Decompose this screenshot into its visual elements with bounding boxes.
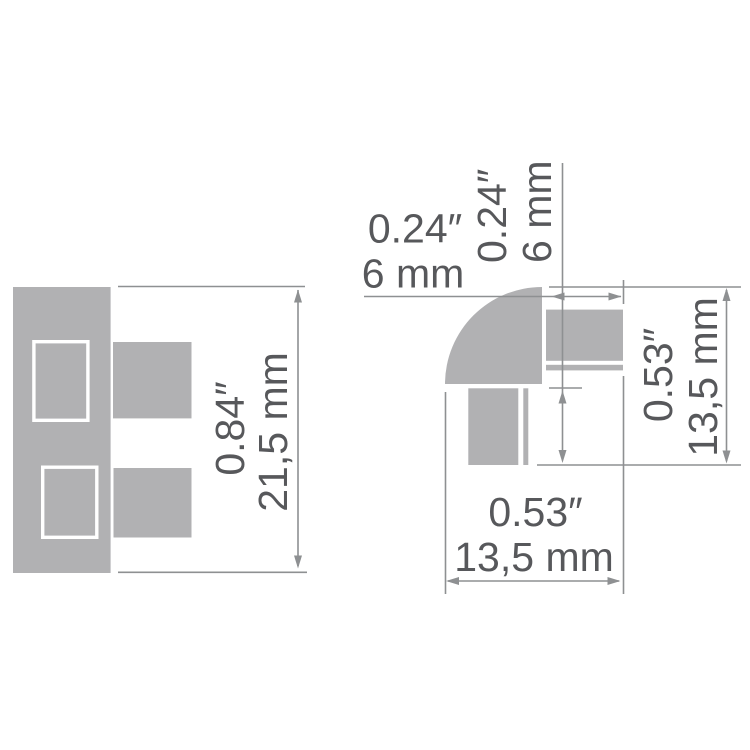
svg-text:0.24″: 0.24″ <box>368 206 462 252</box>
svg-text:6 mm: 6 mm <box>362 251 465 297</box>
svg-text:6 mm: 6 mm <box>514 161 560 264</box>
svg-text:0.84″: 0.84″ <box>207 381 253 475</box>
svg-text:13,5 mm: 13,5 mm <box>680 297 726 457</box>
svg-text:0.53″: 0.53″ <box>635 328 681 422</box>
svg-text:13,5 mm: 13,5 mm <box>454 534 614 580</box>
svg-text:0.24″: 0.24″ <box>469 169 515 263</box>
svg-text:21,5 mm: 21,5 mm <box>250 352 296 512</box>
svg-text:0.53″: 0.53″ <box>488 489 582 535</box>
